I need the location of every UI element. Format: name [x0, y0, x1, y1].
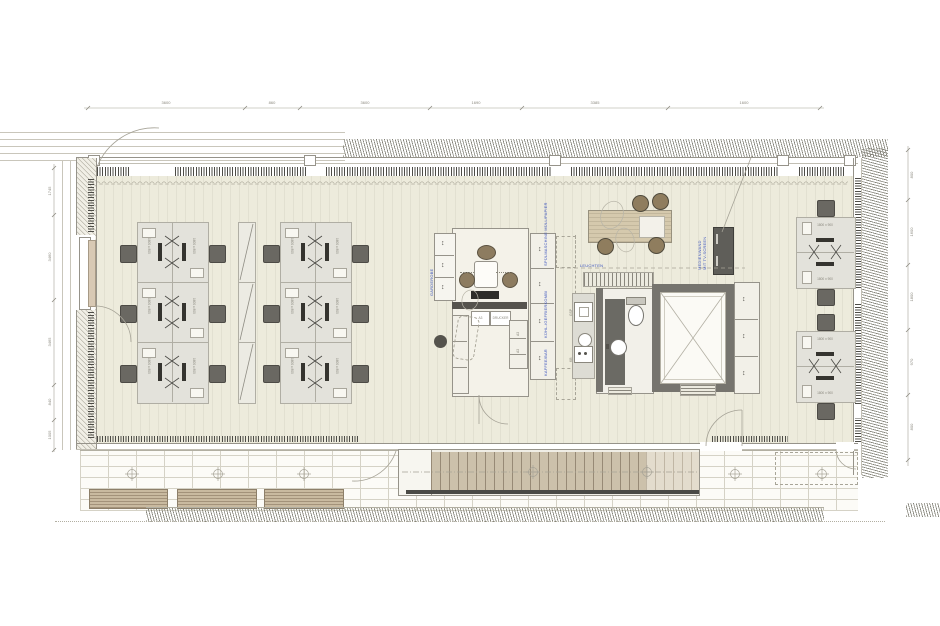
- dimension-chain-top: 3600 860 3600 1690 3385 1600: [80, 94, 860, 114]
- dim-left-2: 3460: [47, 252, 52, 262]
- partition-diagonal-1: [240, 224, 253, 280]
- door-arc-left: [95, 306, 131, 342]
- partition-diagonal-3: [240, 344, 253, 400]
- dim-left-4: 840: [47, 398, 52, 405]
- partition-diagonal-2: [240, 284, 253, 340]
- dim-top-1: 3600: [162, 100, 172, 105]
- dimension-chain-left: 1745 3460 3465 840 1005: [44, 160, 62, 460]
- dim-right-2: 1600: [909, 227, 914, 237]
- dim-right-1: 800: [909, 171, 914, 178]
- door-arc-terrace: [352, 451, 396, 481]
- dim-right-5: 800: [909, 423, 914, 430]
- door-arc-central-room: [479, 395, 508, 424]
- projection-line: [722, 155, 752, 232]
- dim-left-5: 1005: [47, 430, 52, 440]
- sketch-plant-3: [460, 289, 480, 312]
- dim-right-3: 1800: [909, 292, 914, 302]
- floor-plan-canvas: A3 DRUCKER: [0, 0, 940, 626]
- sketch-plant-2: [613, 226, 637, 254]
- door-arc-entry: [97, 128, 159, 167]
- dim-top-2: 860: [269, 100, 276, 105]
- dim-right-4: 970: [909, 358, 914, 365]
- dim-top-4: 1690: [472, 100, 482, 105]
- grid-bubbles: [125, 465, 829, 481]
- dim-top-5: 3385: [591, 100, 601, 105]
- dim-top-6: 1600: [740, 100, 750, 105]
- door-arc-bottom-right: [836, 449, 856, 469]
- dim-left-3: 3465: [47, 337, 52, 347]
- dim-top-3: 3600: [361, 100, 371, 105]
- door-arc-bottom: [706, 410, 742, 446]
- dimension-chain-right: 800 1600 1800 970 800: [898, 140, 920, 476]
- dim-left-1: 1745: [47, 186, 52, 196]
- sketch-plant-1: [597, 198, 627, 232]
